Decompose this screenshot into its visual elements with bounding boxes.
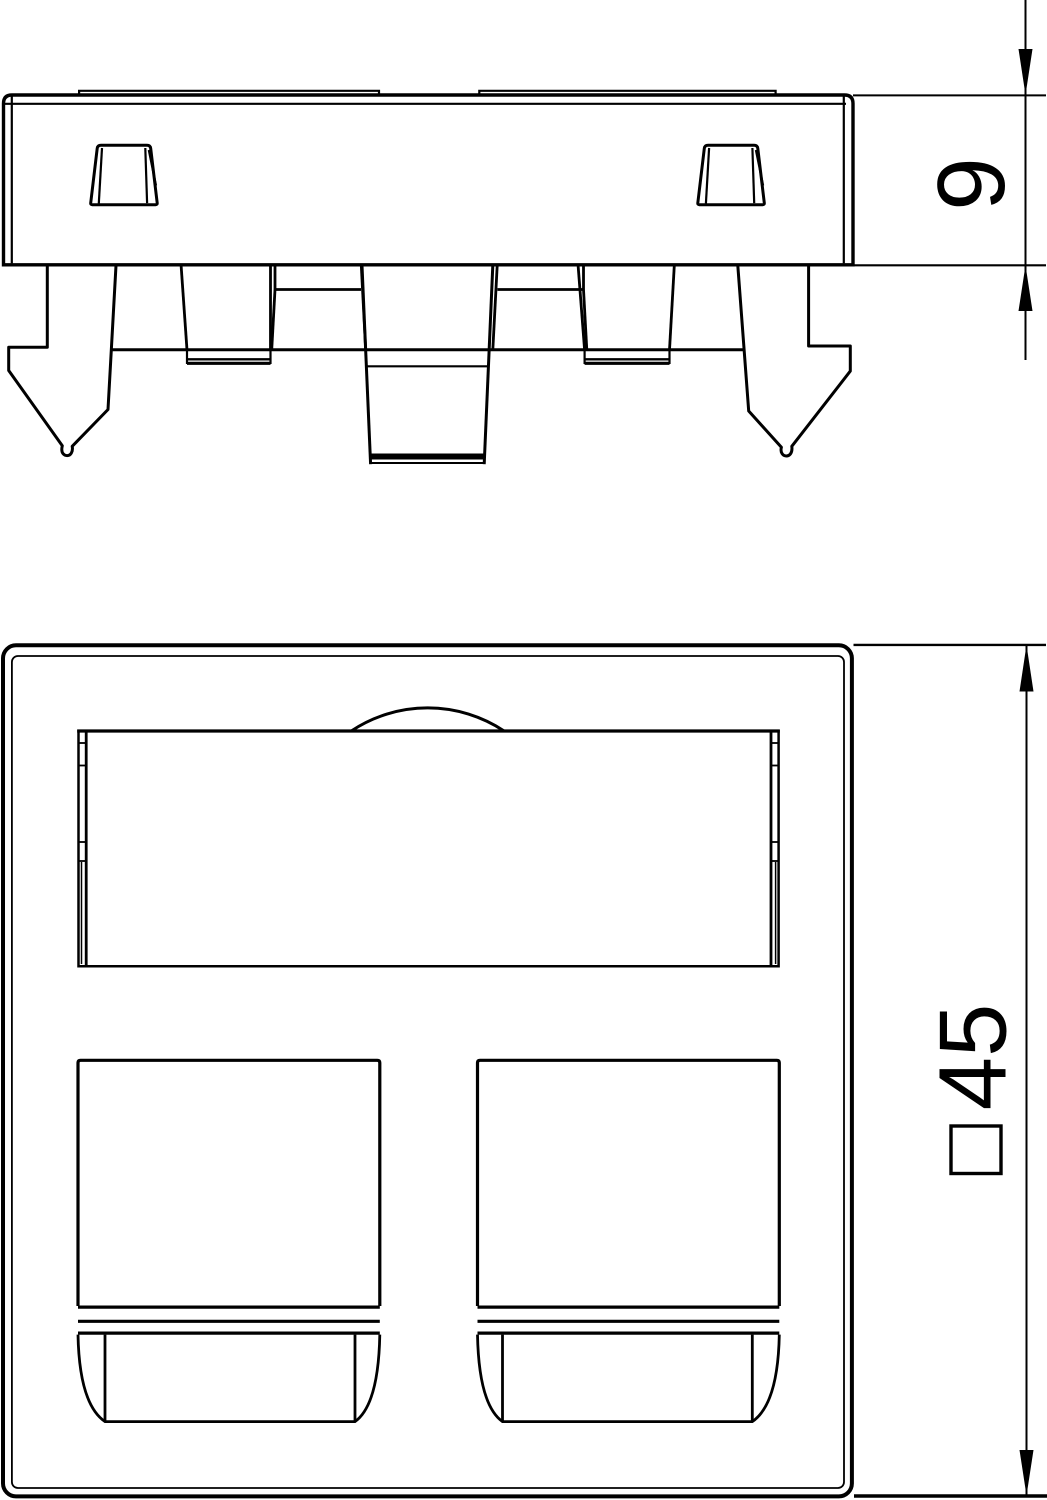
svg-text:9: 9 <box>918 157 1025 210</box>
svg-text:45: 45 <box>920 1004 1027 1111</box>
